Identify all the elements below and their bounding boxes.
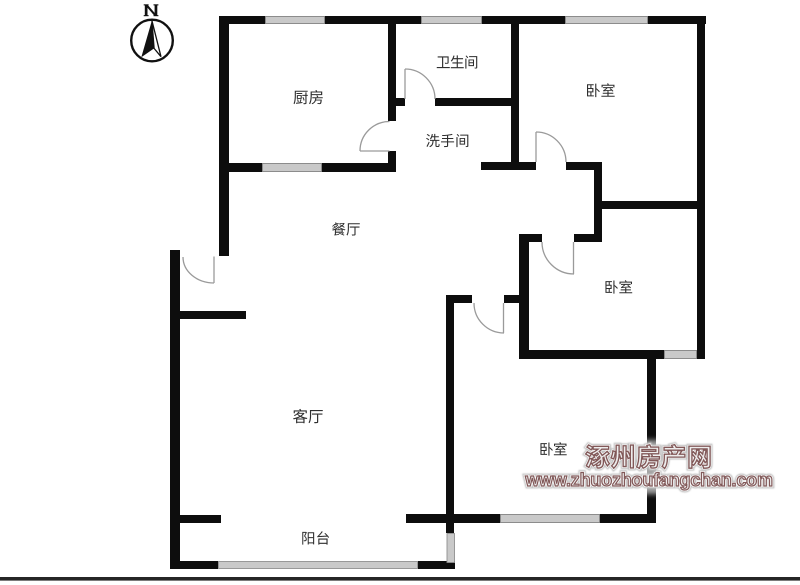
svg-text:www.zhuozhoufangchan.com: www.zhuozhoufangchan.com bbox=[524, 470, 773, 490]
